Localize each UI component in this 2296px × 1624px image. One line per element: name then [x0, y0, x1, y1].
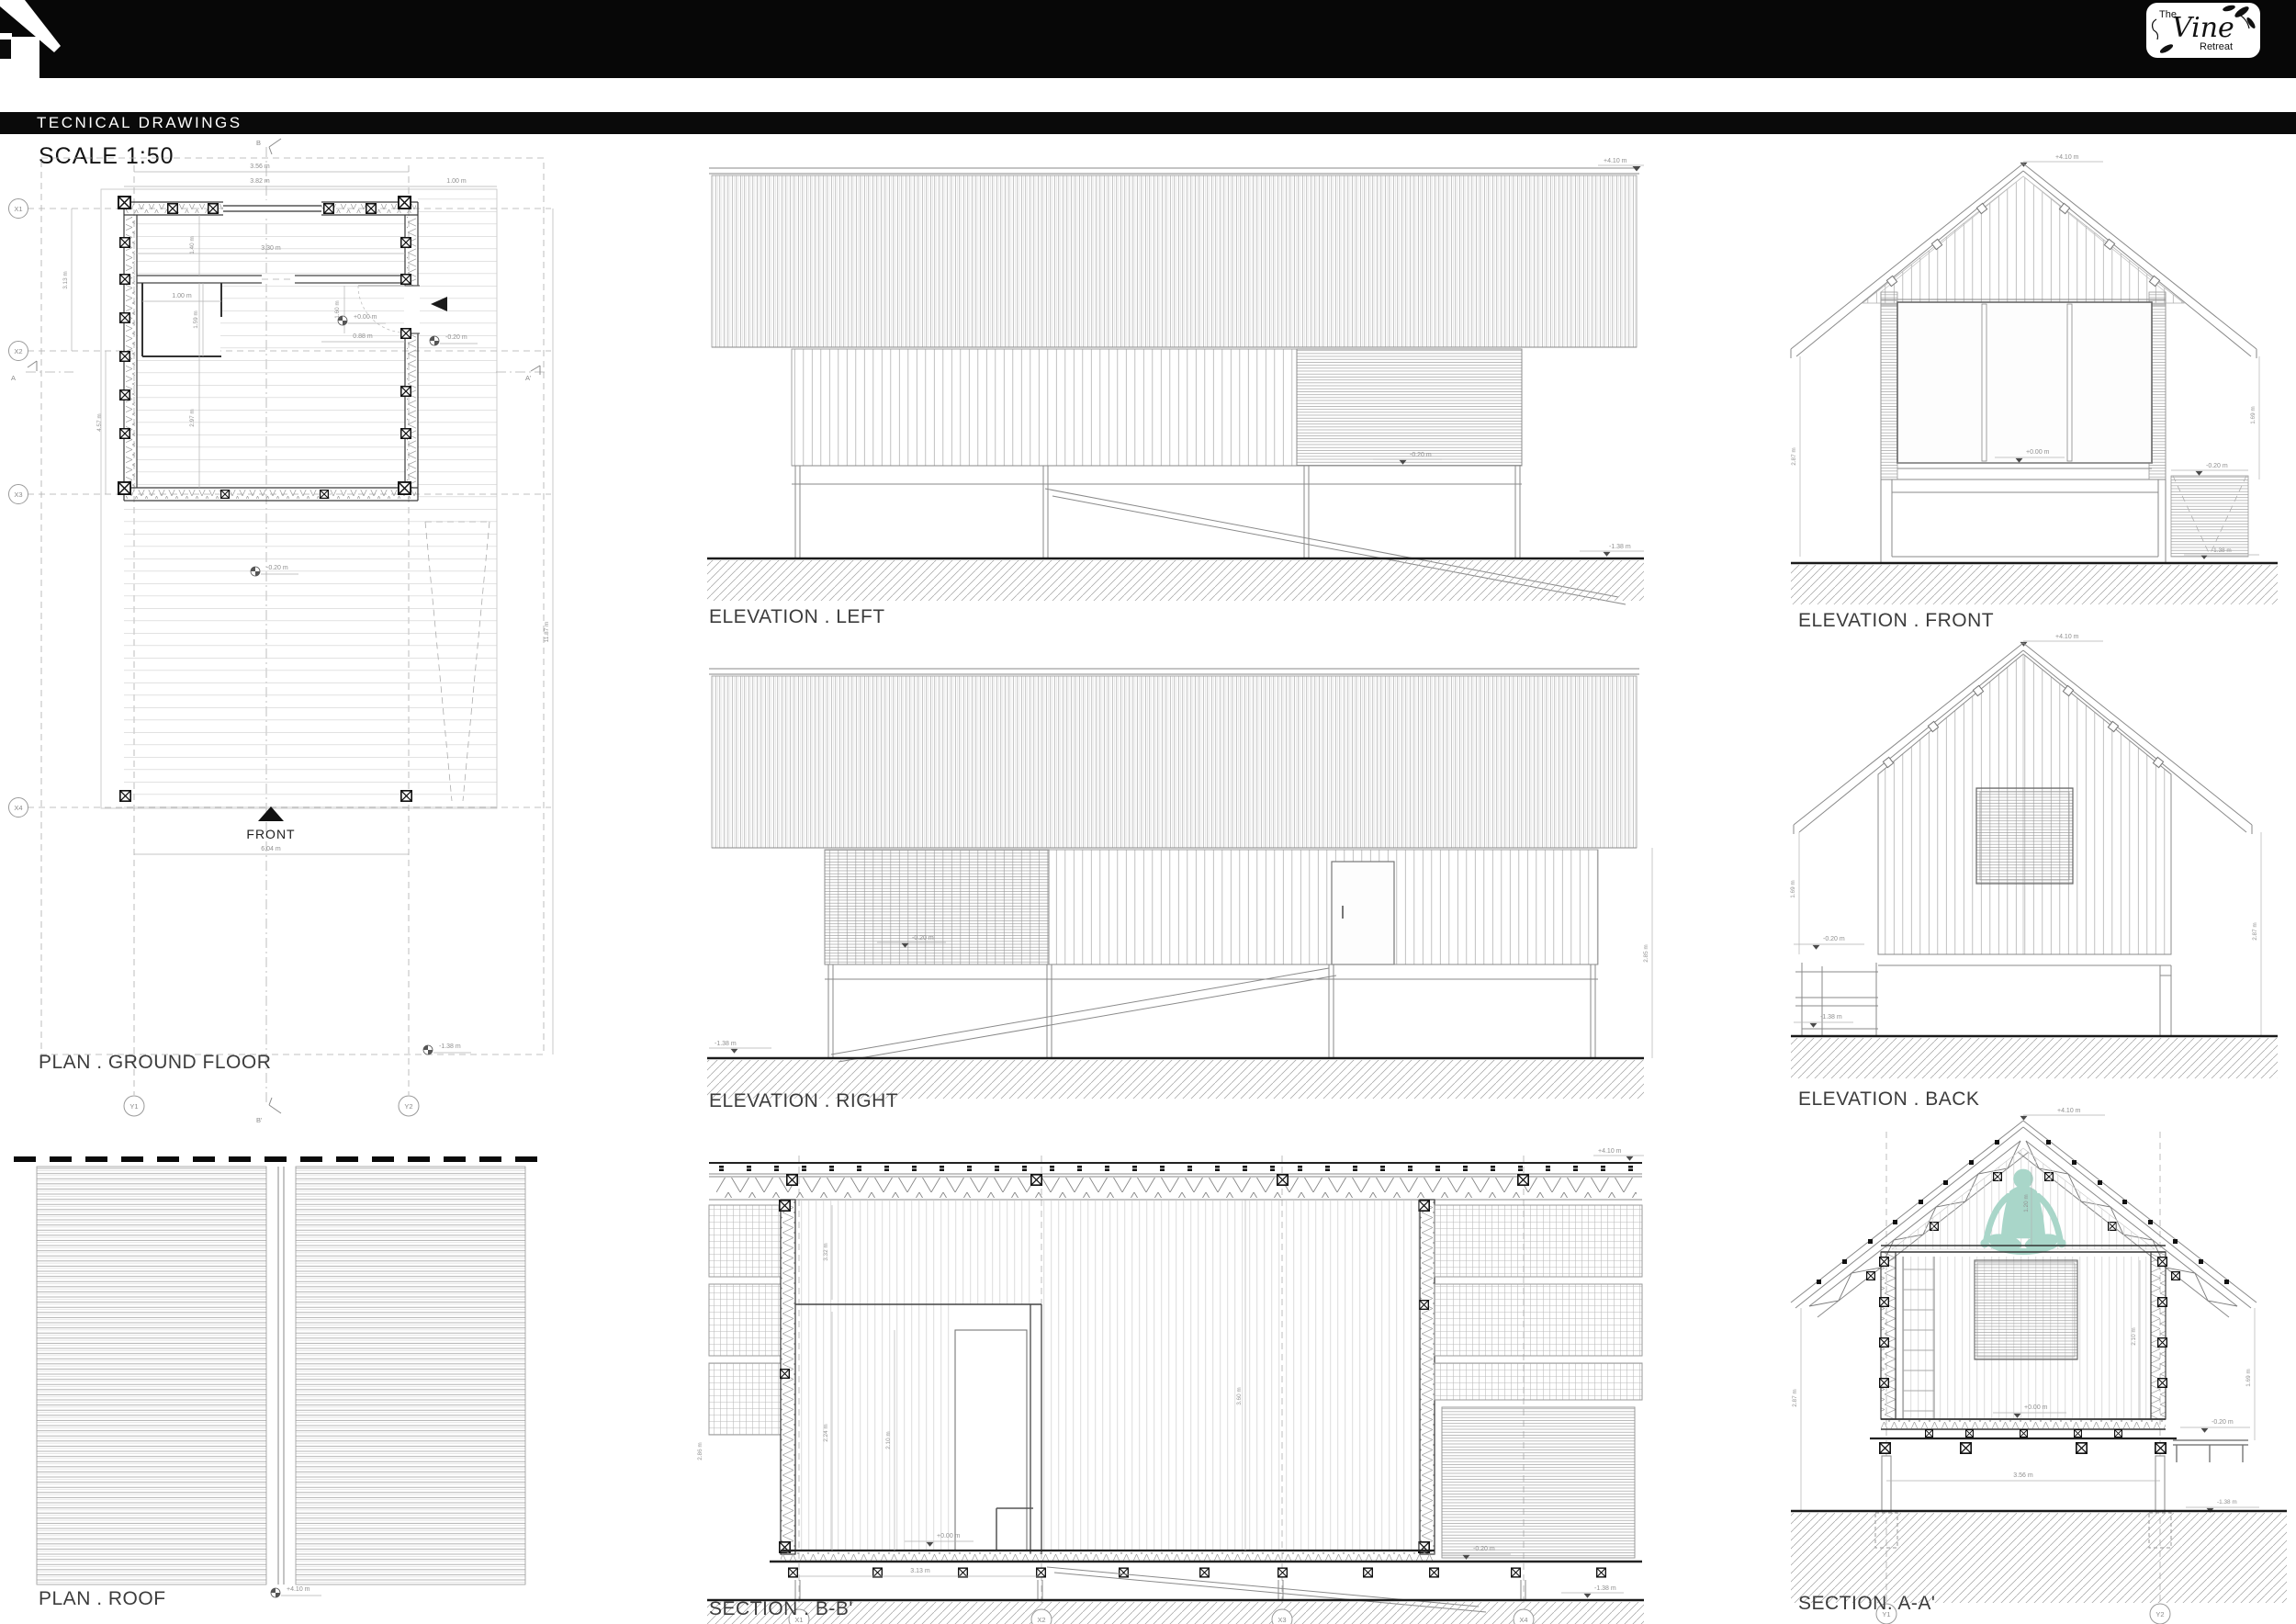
- elevation-left-label: ELEVATION . LEFT: [709, 606, 885, 627]
- elevation-front-label: ELEVATION . FRONT: [1798, 610, 1994, 631]
- dim: 1.59 m: [193, 310, 199, 329]
- elevation-front: +4.10 m +0.00 m: [1791, 154, 2278, 631]
- elevation-back: +4.10 m: [1790, 634, 2278, 1110]
- back-stair-structure: [1795, 963, 1878, 1036]
- svg-text:A: A: [11, 374, 16, 382]
- svg-text:+0.00 m: +0.00 m: [937, 1533, 961, 1539]
- elevation-right: -0.20 m -1.38 m 2.85 m ELEVATION . RIGHT: [707, 669, 1652, 1111]
- svg-text:-0.20 m: -0.20 m: [912, 935, 934, 942]
- dim: 3.82 m: [250, 178, 270, 185]
- svg-text:-0.20 m: -0.20 m: [1410, 452, 1432, 458]
- benchmark-m138: -1.38 m: [423, 1043, 471, 1054]
- plan-roof: +4.10 m PLAN . ROOF: [14, 1159, 537, 1609]
- drawings-canvas: 3.56 m 3.82 m 1.00 m 3.30 m 1.40 m 1.00 …: [0, 0, 2296, 1624]
- dim: 2.10 m: [885, 1431, 892, 1449]
- svg-text:-0.20 m: -0.20 m: [445, 334, 467, 341]
- svg-text:X2: X2: [1037, 1616, 1045, 1624]
- level-m020: -0.20 m: [1794, 936, 1864, 950]
- svg-text:+4.10 m: +4.10 m: [1598, 1148, 1622, 1155]
- benchmark-roof: +4.10 m: [271, 1586, 321, 1597]
- dim: 1.69 m: [1790, 880, 1796, 898]
- section-aa: +4.10 m: [1791, 1108, 2287, 1624]
- svg-text:+0.00 m: +0.00 m: [2024, 1404, 2048, 1411]
- level-p410: +4.10 m: [2020, 1108, 2105, 1121]
- svg-text:+4.10 m: +4.10 m: [287, 1586, 310, 1593]
- dim: 2.86 m: [697, 1442, 703, 1460]
- svg-text:X2: X2: [14, 347, 22, 355]
- svg-text:X4: X4: [14, 804, 22, 812]
- svg-text:+4.10 m: +4.10 m: [2055, 634, 2079, 640]
- section-bb-label: SECTION . B-B': [709, 1598, 853, 1619]
- svg-text:+4.10 m: +4.10 m: [2055, 154, 2079, 161]
- plan-roof-label: PLAN . ROOF: [39, 1588, 166, 1609]
- elevation-right-label: ELEVATION . RIGHT: [709, 1090, 898, 1111]
- dim: 2.85 m: [1643, 944, 1649, 963]
- dim: 4.57 m: [96, 413, 103, 432]
- svg-text:+4.10 m: +4.10 m: [2057, 1108, 2081, 1114]
- dim: 3.56 m: [2013, 1472, 2033, 1479]
- svg-text:X3: X3: [14, 491, 22, 499]
- section-bb: +4.10 m: [697, 1148, 1644, 1624]
- svg-text:+0.00 m: +0.00 m: [2026, 449, 2050, 456]
- svg-text:-0.20 m: -0.20 m: [2212, 1419, 2234, 1426]
- left-louver-panels: [709, 1205, 781, 1435]
- svg-text:X1: X1: [14, 205, 22, 213]
- dim: 1.20 m: [2023, 1194, 2030, 1212]
- house-logo-icon: [0, 0, 202, 165]
- elevation-left: +4.10 m -0.20 m -1.38 m ELEVATION . LEFT: [707, 158, 1644, 627]
- svg-text:-1.38 m: -1.38 m: [2217, 1499, 2237, 1506]
- dim: 1.40 m: [189, 236, 196, 254]
- dim: 2.24 m: [823, 1424, 829, 1442]
- svg-text:-1.38 m: -1.38 m: [2212, 547, 2232, 554]
- svg-text:B': B': [256, 1116, 263, 1124]
- dim: 3.32 m: [823, 1243, 829, 1261]
- level-p410: +4.10 m: [2020, 154, 2103, 167]
- svg-text:Y2: Y2: [2155, 1610, 2164, 1618]
- svg-text:A': A': [525, 374, 532, 382]
- dim: 1.60 m: [334, 300, 341, 319]
- front-arrow-icon: [258, 806, 284, 821]
- dim: 0.88 m: [353, 333, 373, 340]
- svg-text:Y2: Y2: [404, 1102, 412, 1111]
- svg-text:B: B: [256, 139, 261, 147]
- svg-text:-1.38 m: -1.38 m: [1609, 544, 1631, 550]
- svg-text:-1.38 m: -1.38 m: [715, 1041, 737, 1047]
- dim: 2.87 m: [1792, 1389, 1798, 1407]
- svg-text:-1.38 m: -1.38 m: [1820, 1014, 1842, 1021]
- level-p410: +4.10 m: [1598, 158, 1644, 172]
- svg-text:X3: X3: [1277, 1616, 1286, 1624]
- dim: 6.04 m: [261, 846, 281, 852]
- dim: 3.30 m: [261, 245, 281, 252]
- dim: 2.97 m: [189, 409, 196, 427]
- bench: [2173, 1440, 2248, 1462]
- svg-text:-0.20 m: -0.20 m: [1473, 1546, 1495, 1552]
- dim: 3.60 m: [1236, 1387, 1243, 1405]
- level-m138: -1.38 m: [1561, 1585, 1624, 1598]
- level-m020: -0.20 m: [2180, 1419, 2250, 1433]
- svg-text:+4.10 m: +4.10 m: [1604, 158, 1627, 164]
- svg-text:-0.20 m: -0.20 m: [266, 565, 288, 571]
- dim: 1.69 m: [2250, 406, 2257, 424]
- dim: 2.87 m: [1791, 447, 1797, 466]
- dim: 2.87 m: [2252, 922, 2258, 941]
- dim: 3.13 m: [910, 1568, 930, 1574]
- section-aa-label: SECTION. A-A': [1798, 1593, 1935, 1614]
- svg-text:X4: X4: [1519, 1616, 1527, 1624]
- elevation-back-label: ELEVATION . BACK: [1798, 1088, 1979, 1110]
- dim: 1.00 m: [172, 293, 192, 299]
- dim: 1.69 m: [2245, 1369, 2252, 1387]
- svg-text:+0.00 m: +0.00 m: [354, 314, 377, 321]
- level-m138: -1.38 m: [709, 1041, 771, 1054]
- level-p410: +4.10 m: [1593, 1148, 1644, 1161]
- right-louver-panels: [1435, 1205, 1642, 1558]
- dim: 11.87 m: [544, 622, 550, 643]
- dim: 3.56 m: [250, 164, 270, 170]
- svg-text:-0.20 m: -0.20 m: [1823, 936, 1845, 942]
- svg-text:Y1: Y1: [129, 1102, 138, 1111]
- level-m138: -1.38 m: [1580, 544, 1644, 557]
- dim: 2.10 m: [2131, 1327, 2137, 1346]
- svg-text:-1.38 m: -1.38 m: [439, 1043, 461, 1050]
- svg-text:-0.20 m: -0.20 m: [2206, 463, 2228, 469]
- plan-ground-label: PLAN . GROUND FLOOR: [39, 1052, 271, 1073]
- svg-text:-1.38 m: -1.38 m: [1594, 1585, 1616, 1592]
- front-label: FRONT: [246, 827, 295, 841]
- drawing-sheet: The Vine Retreat TECNICAL DRAWINGS SCALE…: [0, 0, 2296, 1624]
- level-m138: -1.38 m: [1794, 1014, 1853, 1028]
- level-m020: -0.20 m: [2171, 463, 2248, 476]
- plan-ground-floor: 3.56 m 3.82 m 1.00 m 3.30 m 1.40 m 1.00 …: [9, 139, 554, 1124]
- level-p410: +4.10 m: [2020, 634, 2103, 647]
- dim: 3.13 m: [62, 271, 69, 289]
- dim: 1.00 m: [446, 178, 467, 185]
